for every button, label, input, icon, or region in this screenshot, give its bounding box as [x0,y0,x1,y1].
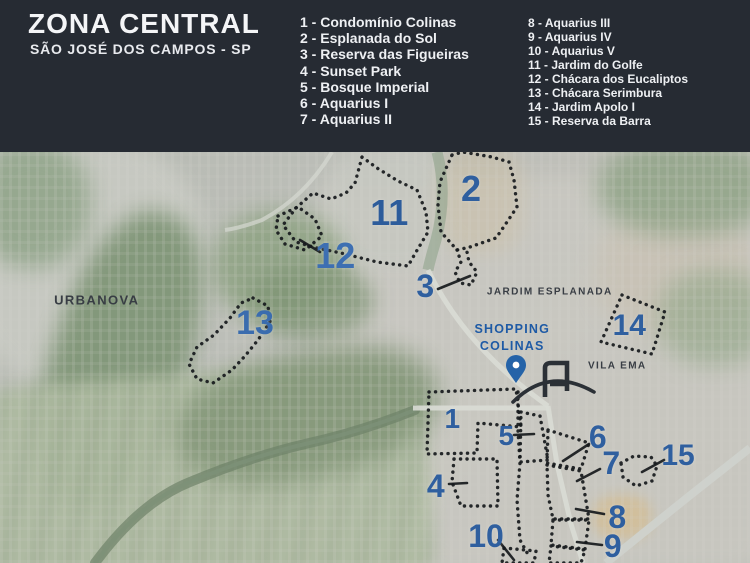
map-label-jardim-esplanada: JARDIM ESPLANADA [487,287,613,298]
map-marker-10: 10 [468,520,504,552]
map-marker-14: 14 [613,311,646,341]
legend-item: 1 - Condomínio Colinas [300,14,469,30]
map-marker-4: 4 [427,470,445,502]
shopping-line1: SHOPPING [474,321,550,338]
legend-item: 9 - Aquarius IV [528,30,688,44]
map-marker-1: 1 [444,405,460,433]
legend-item: 12 - Chácara dos Eucaliptos [528,72,688,86]
legend-item: 13 - Chácara Serimbura [528,86,688,100]
map-marker-2: 2 [461,171,481,207]
legend-item: 10 - Aquarius V [528,44,688,58]
legend-item: 5 - Bosque Imperial [300,79,469,95]
map-marker-7: 7 [602,447,620,479]
page-subtitle: SÃO JOSÉ DOS CAMPOS - SP [30,41,251,57]
legend-item: 14 - Jardim Apolo I [528,100,688,114]
map-marker-9: 9 [604,530,622,562]
map-label-urbanova: URBANOVA [54,292,139,307]
legend-column-1: 1 - Condomínio Colinas2 - Esplanada do S… [300,14,469,127]
legend-item: 2 - Esplanada do Sol [300,30,469,46]
legend-item: 8 - Aquarius III [528,16,688,30]
location-pin-icon [506,355,526,383]
header-band: ZONA CENTRAL SÃO JOSÉ DOS CAMPOS - SP 1 … [0,0,750,152]
map-marker-12: 12 [315,238,355,274]
map-marker-15: 15 [661,441,694,471]
map-marker-5: 5 [498,422,514,450]
map-marker-11: 11 [370,195,408,231]
legend-item: 11 - Jardim do Golfe [528,58,688,72]
legend-item: 4 - Sunset Park [300,63,469,79]
legend-item: 7 - Aquarius II [300,111,469,127]
map-marker-3: 3 [416,270,434,302]
legend-item: 3 - Reserva das Figueiras [300,46,469,62]
map-marker-13: 13 [236,306,274,340]
shopping-line2: COLINAS [474,338,550,355]
satellite-map: SHOPPING COLINAS URBANOVAJARDIM ESPLANAD… [0,152,750,563]
legend-item: 15 - Reserva da Barra [528,114,688,128]
page-title: ZONA CENTRAL [28,8,260,40]
map-label-vila-ema: VILA EMA [588,361,647,372]
legend-item: 6 - Aquarius I [300,95,469,111]
infographic: ZONA CENTRAL SÃO JOSÉ DOS CAMPOS - SP 1 … [0,0,750,563]
shopping-colinas-label: SHOPPING COLINAS [474,321,550,355]
legend-column-2: 8 - Aquarius III9 - Aquarius IV10 - Aqua… [528,16,688,128]
